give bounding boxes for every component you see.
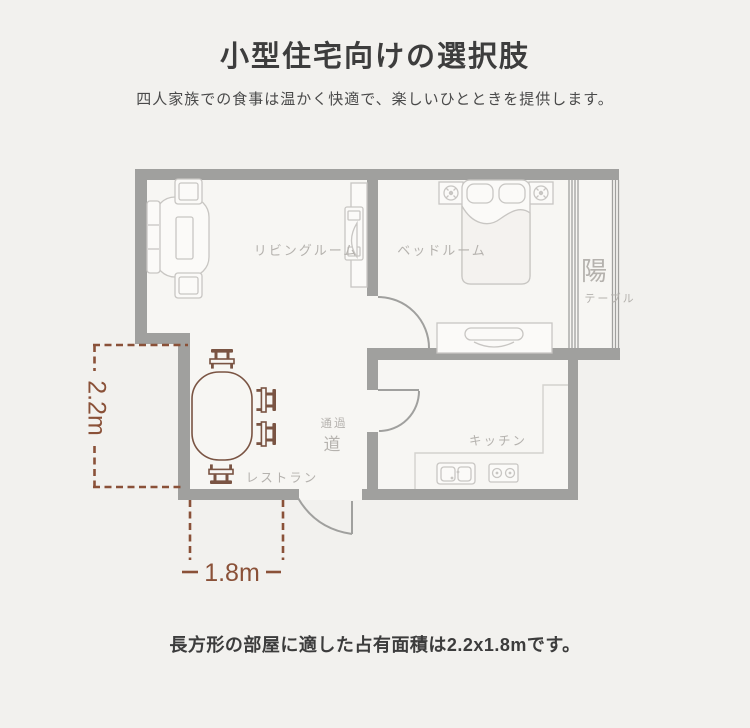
kitchen-door-gap: [367, 390, 378, 432]
dresser-group: [437, 323, 552, 353]
wall-top: [135, 169, 619, 180]
pillow-right: [499, 184, 525, 203]
wall-left: [135, 169, 147, 344]
entrance-door-arc: [298, 498, 352, 534]
wall-bottom-kitchen: [362, 489, 578, 500]
wall-bottom-dining: [178, 489, 299, 500]
entrance-gap: [298, 489, 362, 500]
hallway-label-small: 通過: [321, 417, 348, 430]
dim-width-label: 1.8m: [204, 559, 260, 587]
living-room-label: リビングルーム: [254, 243, 359, 258]
pillow-left: [467, 184, 493, 203]
floor-plan: 2.2m 1.8m リビングルーム ベッドルーム キッチン レストラン 通過 道…: [0, 0, 750, 728]
wall-center-top: [367, 180, 378, 296]
bedroom-label: ベッドルーム: [397, 243, 487, 258]
kitchen-label: キッチン: [469, 434, 527, 448]
sofa-backrest: [147, 201, 160, 273]
dresser-tray: [465, 328, 523, 340]
hallway-label-large: 道: [324, 435, 343, 454]
wall-dining-left: [178, 333, 190, 500]
wall-kitchen-right: [568, 360, 578, 489]
wall-center-bottom: [367, 432, 378, 489]
infographic-page: 小型住宅向けの選択肢 四人家族での食事は温かく快適で、楽しいひとときを提供します…: [0, 0, 750, 728]
balcony-label-small: テーブル: [584, 291, 635, 305]
dining-label: レストラン: [246, 471, 319, 485]
dining-table: [192, 372, 252, 460]
footer-caption: 長方形の部屋に適した占有面積は2.2x1.8mです。: [0, 631, 750, 657]
bedroom-door-gap: [367, 296, 378, 348]
balcony-label-large: 陽: [581, 256, 609, 286]
coffee-table: [176, 217, 193, 259]
kitchen-stove: [489, 464, 518, 482]
dim-height-label: 2.2m: [82, 380, 110, 436]
